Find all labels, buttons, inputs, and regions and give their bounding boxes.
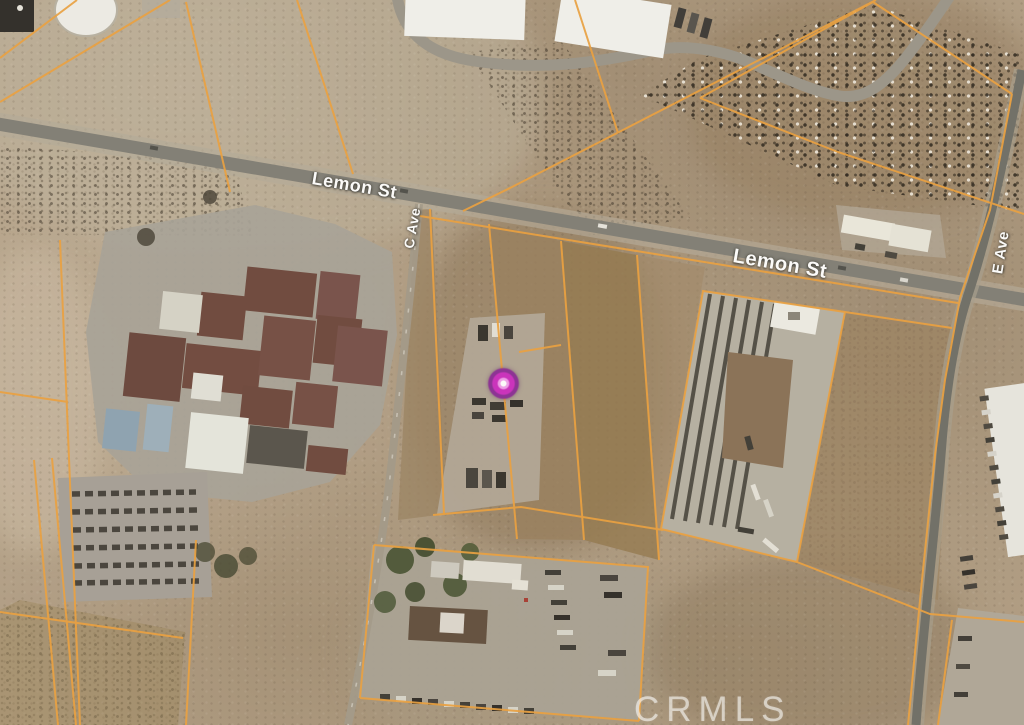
water-tank — [55, 0, 117, 36]
satellite-map[interactable]: Lemon St Lemon St C Ave E Ave CRMLS — [0, 0, 1024, 725]
property-location-marker[interactable] — [487, 367, 520, 400]
map-graphics — [0, 0, 1024, 725]
east-avenue-warehouse — [978, 383, 1024, 558]
crmls-watermark: CRMLS — [634, 690, 792, 725]
dark-corner-building — [0, 0, 34, 32]
water-tank-and-corner — [0, 0, 180, 36]
